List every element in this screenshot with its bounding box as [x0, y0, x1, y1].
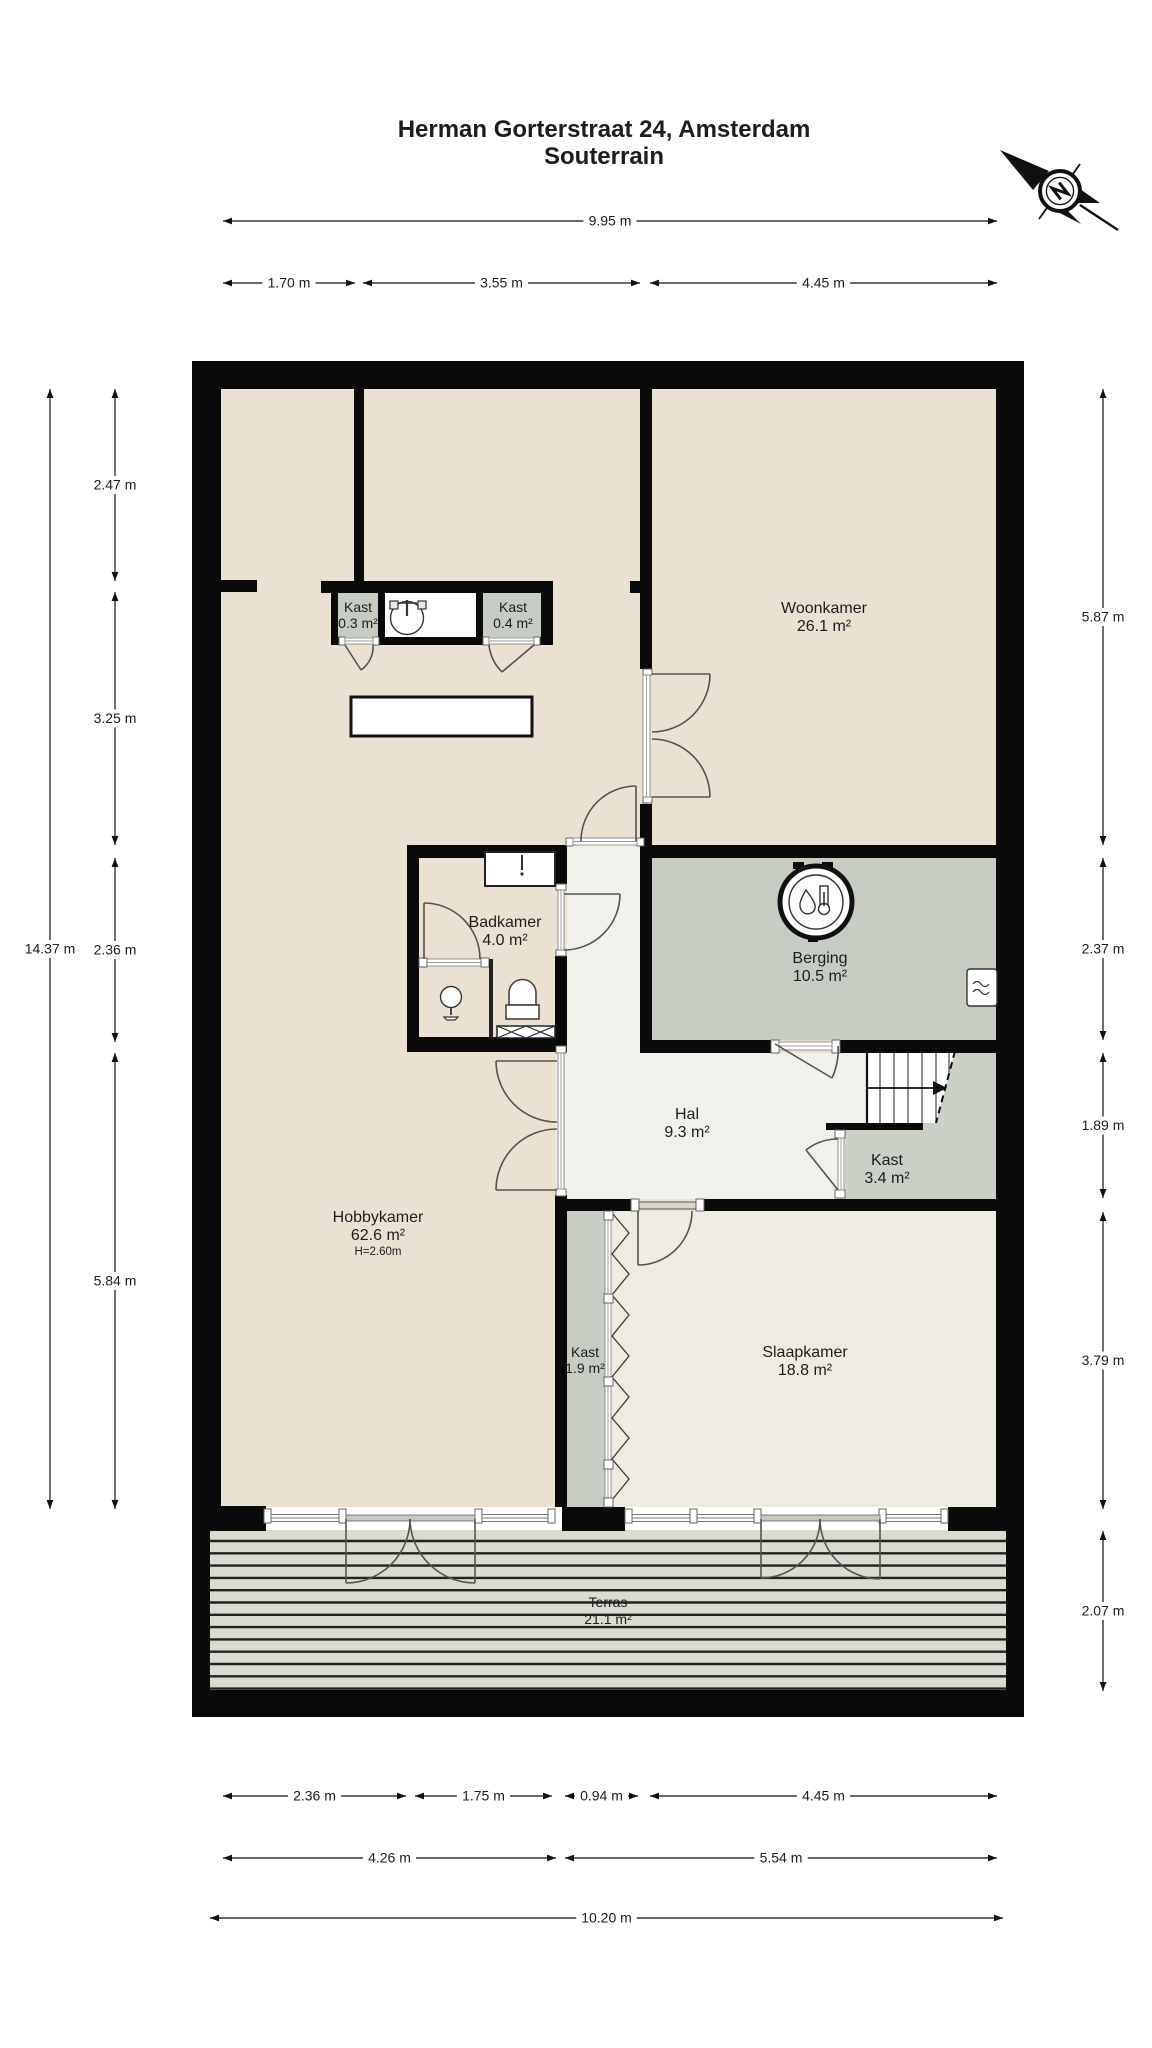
svg-text:3.25 m: 3.25 m	[94, 710, 137, 726]
svg-text:Hal: Hal	[675, 1106, 699, 1123]
svg-text:4.45 m: 4.45 m	[802, 275, 845, 291]
svg-text:Kast: Kast	[344, 599, 372, 615]
svg-text:62.6 m²: 62.6 m²	[351, 1227, 406, 1244]
svg-text:1.9 m²: 1.9 m²	[565, 1360, 605, 1376]
svg-text:2.47 m: 2.47 m	[94, 477, 137, 493]
svg-text:3.4 m²: 3.4 m²	[864, 1170, 910, 1187]
svg-text:Slaapkamer: Slaapkamer	[762, 1344, 848, 1361]
svg-text:Terras: Terras	[589, 1594, 628, 1610]
svg-text:Kast: Kast	[571, 1344, 599, 1360]
svg-text:2.37 m: 2.37 m	[1082, 941, 1125, 957]
svg-text:3.55 m: 3.55 m	[480, 275, 523, 291]
svg-text:14.37 m: 14.37 m	[25, 941, 76, 957]
svg-text:Hobbykamer: Hobbykamer	[333, 1209, 424, 1226]
svg-text:1.89 m: 1.89 m	[1082, 1117, 1125, 1133]
svg-text:10.20 m: 10.20 m	[581, 1910, 632, 1926]
svg-text:21.1 m²: 21.1 m²	[584, 1611, 632, 1627]
svg-text:Kast: Kast	[499, 599, 527, 615]
svg-text:H=2.60m: H=2.60m	[355, 1246, 402, 1258]
svg-text:10.5 m²: 10.5 m²	[793, 968, 848, 985]
svg-text:0.4 m²: 0.4 m²	[493, 615, 533, 631]
svg-text:18.8 m²: 18.8 m²	[778, 1362, 833, 1379]
svg-text:Woonkamer: Woonkamer	[781, 600, 868, 617]
svg-text:4.26 m: 4.26 m	[368, 1850, 411, 1866]
svg-text:26.1 m²: 26.1 m²	[797, 618, 852, 635]
svg-text:2.36 m: 2.36 m	[94, 942, 137, 958]
svg-text:0.3 m²: 0.3 m²	[338, 615, 378, 631]
svg-text:2.36 m: 2.36 m	[293, 1788, 336, 1804]
svg-text:5.84 m: 5.84 m	[94, 1273, 137, 1289]
svg-text:Berging: Berging	[792, 950, 847, 967]
svg-text:1.70 m: 1.70 m	[268, 275, 311, 291]
svg-text:0.94 m: 0.94 m	[580, 1788, 623, 1804]
svg-text:Souterrain: Souterrain	[544, 143, 664, 170]
svg-text:4.45 m: 4.45 m	[802, 1788, 845, 1804]
svg-text:Badkamer: Badkamer	[469, 914, 543, 931]
svg-text:9.3 m²: 9.3 m²	[664, 1124, 710, 1141]
svg-text:4.0 m²: 4.0 m²	[482, 932, 528, 949]
svg-text:Herman Gorterstraat 24, Amster: Herman Gorterstraat 24, Amsterdam	[398, 116, 811, 143]
svg-text:3.79 m: 3.79 m	[1082, 1352, 1125, 1368]
svg-text:1.75 m: 1.75 m	[462, 1788, 505, 1804]
svg-text:2.07 m: 2.07 m	[1082, 1603, 1125, 1619]
svg-text:5.54 m: 5.54 m	[760, 1850, 803, 1866]
svg-text:Kast: Kast	[871, 1152, 904, 1169]
svg-text:9.95 m: 9.95 m	[589, 213, 632, 229]
svg-text:5.87 m: 5.87 m	[1082, 609, 1125, 625]
